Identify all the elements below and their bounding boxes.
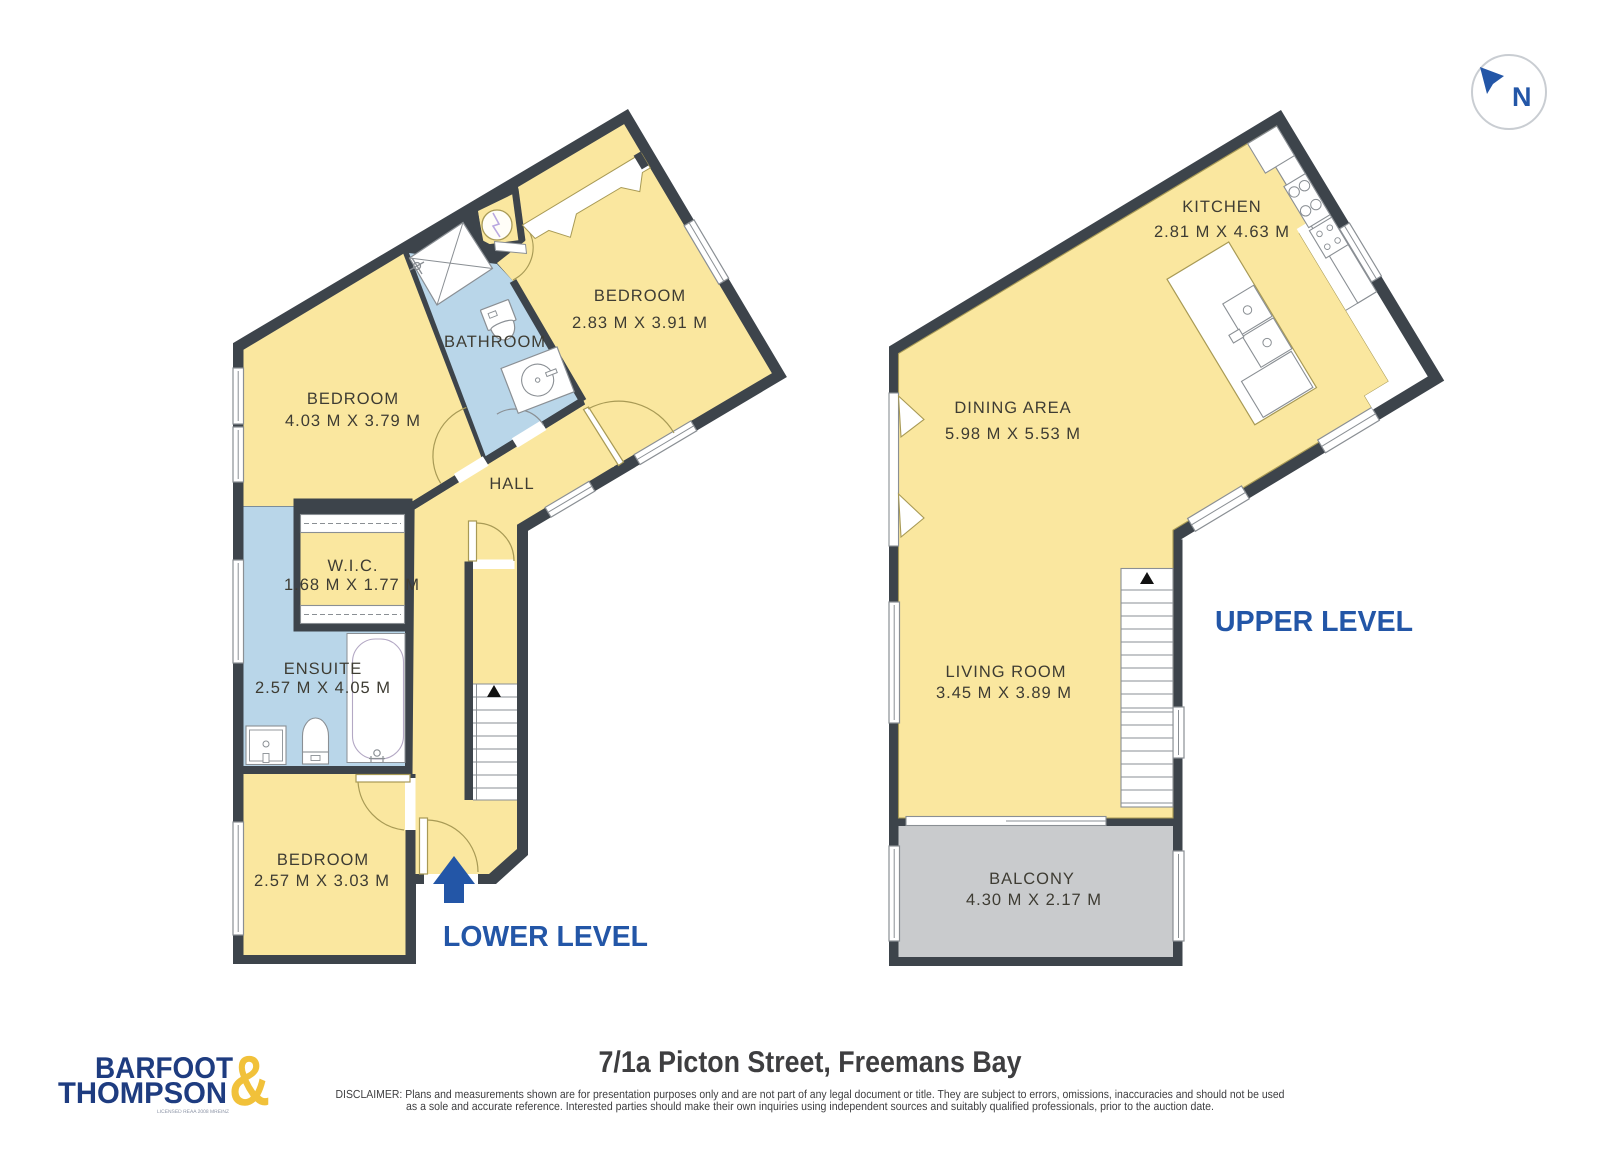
svg-text:2.81 M X 4.63 M: 2.81 M X 4.63 M bbox=[1154, 223, 1290, 241]
svg-text:W.I.C.: W.I.C. bbox=[328, 557, 379, 575]
svg-text:&: & bbox=[229, 1042, 270, 1121]
svg-text:LIVING ROOM: LIVING ROOM bbox=[945, 663, 1066, 681]
svg-text:UPPER LEVEL: UPPER LEVEL bbox=[1215, 606, 1413, 638]
svg-text:ENSUITE: ENSUITE bbox=[284, 660, 363, 678]
svg-text:1.68 M X 1.77 M: 1.68 M X 1.77 M bbox=[284, 576, 420, 594]
svg-text:4.03 M X 3.79 M: 4.03 M X 3.79 M bbox=[285, 412, 421, 430]
svg-text:2.57 M X 3.03 M: 2.57 M X 3.03 M bbox=[254, 872, 390, 890]
svg-text:3.45 M X 3.89 M: 3.45 M X 3.89 M bbox=[936, 684, 1072, 702]
svg-text:2.83 M X 3.91 M: 2.83 M X 3.91 M bbox=[572, 314, 708, 332]
svg-text:LICENSED REAA 2008 MREINZ: LICENSED REAA 2008 MREINZ bbox=[157, 1109, 229, 1115]
svg-text:BALCONY: BALCONY bbox=[989, 870, 1075, 888]
svg-text:THOMPSON: THOMPSON bbox=[58, 1077, 227, 1110]
svg-text:DINING AREA: DINING AREA bbox=[954, 399, 1071, 417]
svg-text:BEDROOM: BEDROOM bbox=[594, 287, 686, 305]
svg-text:HALL: HALL bbox=[489, 475, 534, 493]
svg-text:KITCHEN: KITCHEN bbox=[1182, 198, 1261, 216]
svg-text:N: N bbox=[1512, 82, 1532, 112]
svg-text:5.98 M X 5.53 M: 5.98 M X 5.53 M bbox=[945, 425, 1081, 443]
svg-text:4.30 M X 2.17 M: 4.30 M X 2.17 M bbox=[966, 891, 1102, 909]
svg-text:2.57 M X 4.05 M: 2.57 M X 4.05 M bbox=[255, 679, 391, 697]
svg-text:7/1a Picton Street, Freemans B: 7/1a Picton Street, Freemans Bay bbox=[599, 1046, 1022, 1079]
svg-text:as a sole and accurate referen: as a sole and accurate reference. Intere… bbox=[406, 1100, 1214, 1113]
svg-text:BEDROOM: BEDROOM bbox=[307, 390, 399, 408]
svg-text:LOWER LEVEL: LOWER LEVEL bbox=[443, 921, 648, 953]
svg-text:BEDROOM: BEDROOM bbox=[277, 851, 369, 869]
svg-text:BATHROOM: BATHROOM bbox=[444, 333, 546, 351]
